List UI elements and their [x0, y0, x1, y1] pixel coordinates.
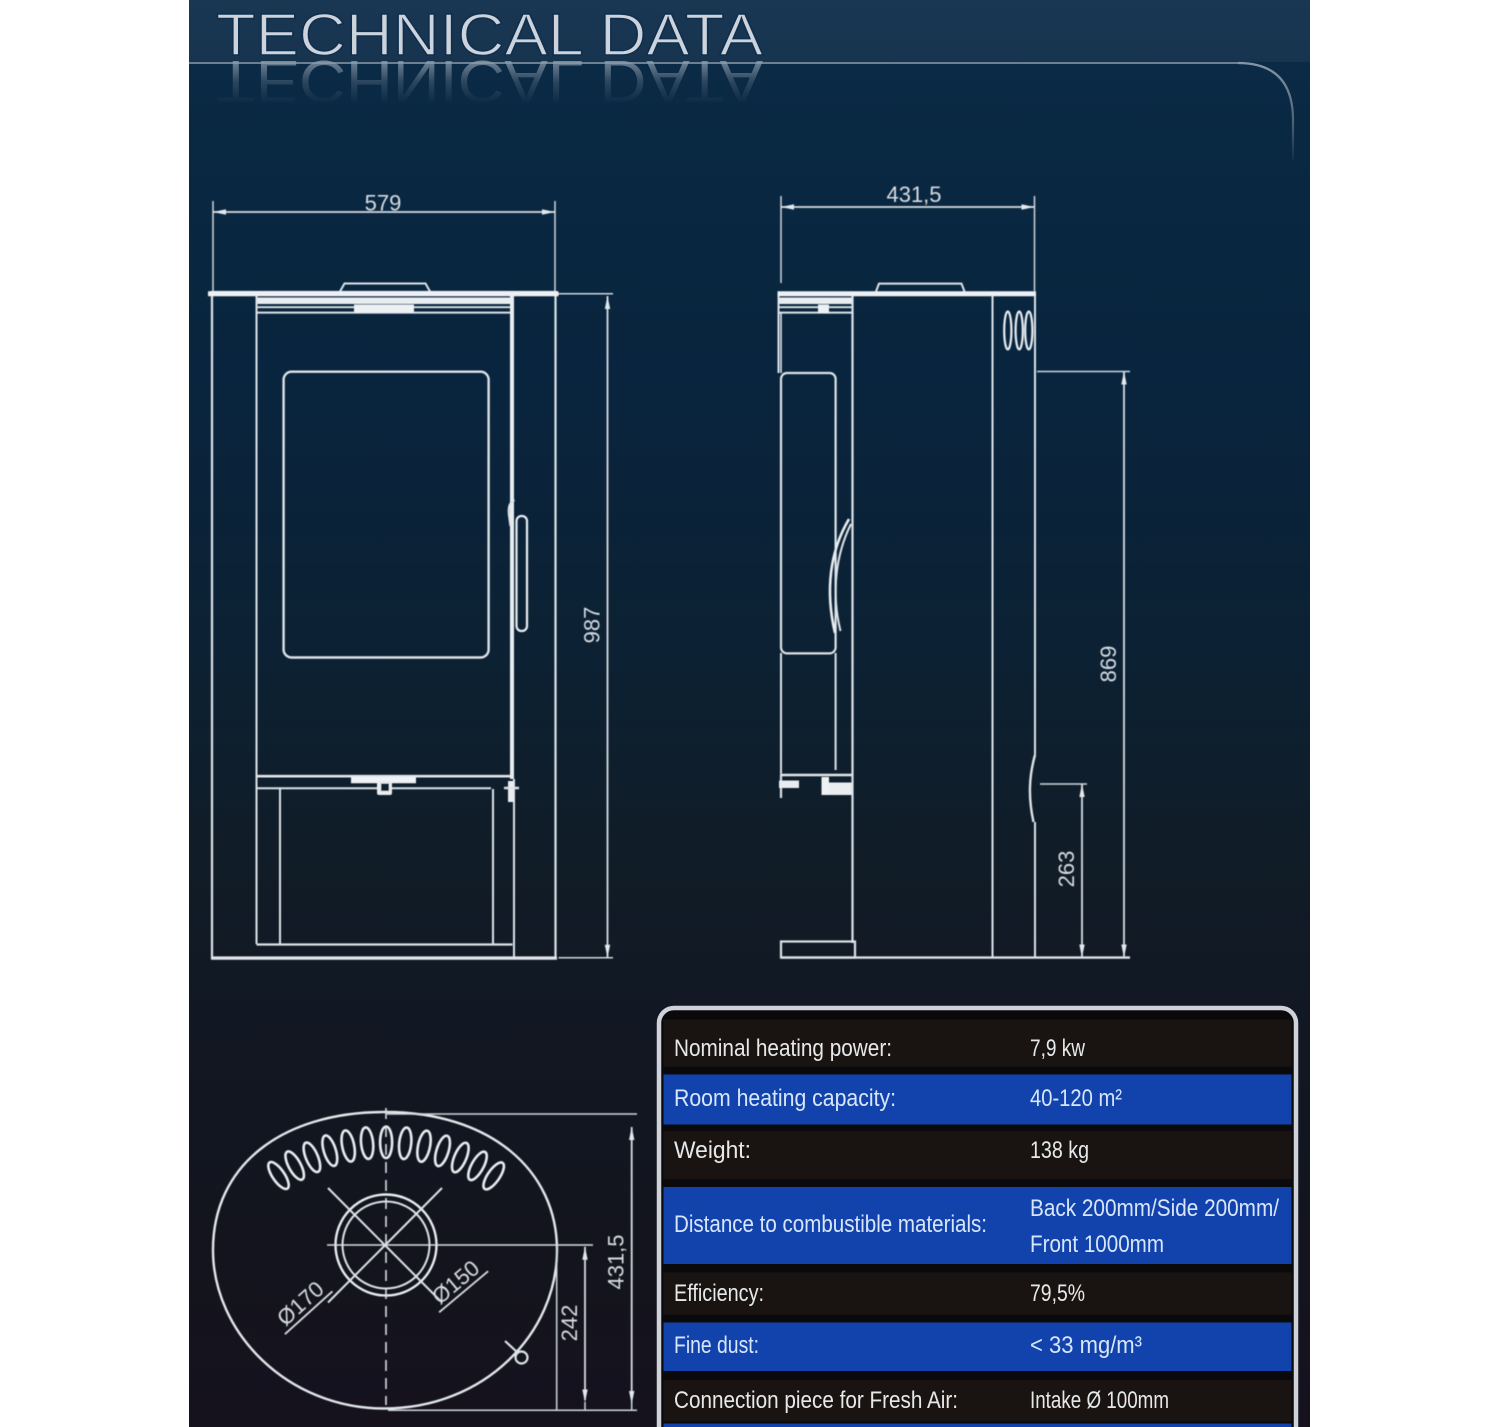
svg-text:7,9 kw: 7,9 kw: [1030, 1035, 1086, 1062]
svg-text:Weight:: Weight:: [674, 1137, 751, 1164]
svg-text:< 33 mg/m³: < 33 mg/m³: [1030, 1332, 1142, 1359]
svg-text:Back 200mm/Side 200mm/: Back 200mm/Side 200mm/: [1030, 1195, 1279, 1222]
svg-text:138 kg: 138 kg: [1030, 1137, 1089, 1164]
svg-text:431,5: 431,5: [886, 182, 941, 207]
svg-text:Connection piece for Fresh Air: Connection piece for Fresh Air:: [674, 1387, 958, 1414]
svg-text:79,5%: 79,5%: [1030, 1280, 1085, 1307]
svg-text:TECHNICAL DATA: TECHNICAL DATA: [216, 48, 764, 114]
svg-text:431,5: 431,5: [604, 1234, 629, 1289]
svg-text:Room heating capacity:: Room heating capacity:: [674, 1085, 896, 1112]
svg-text:869: 869: [1096, 646, 1121, 683]
svg-text:579: 579: [365, 191, 402, 216]
svg-text:Distance to combustible materi: Distance to combustible materials:: [674, 1211, 987, 1238]
svg-text:40-120 m²: 40-120 m²: [1030, 1085, 1122, 1112]
svg-text:987: 987: [580, 607, 605, 644]
svg-text:263: 263: [1054, 851, 1079, 888]
svg-text:Intake Ø 100mm: Intake Ø 100mm: [1030, 1387, 1169, 1414]
svg-text:Efficiency:: Efficiency:: [674, 1280, 764, 1307]
svg-text:Front 1000mm: Front 1000mm: [1030, 1231, 1164, 1258]
svg-text:Nominal heating power:: Nominal heating power:: [674, 1035, 892, 1062]
svg-text:Fine dust:: Fine dust:: [674, 1332, 759, 1359]
svg-text:242: 242: [557, 1305, 582, 1342]
